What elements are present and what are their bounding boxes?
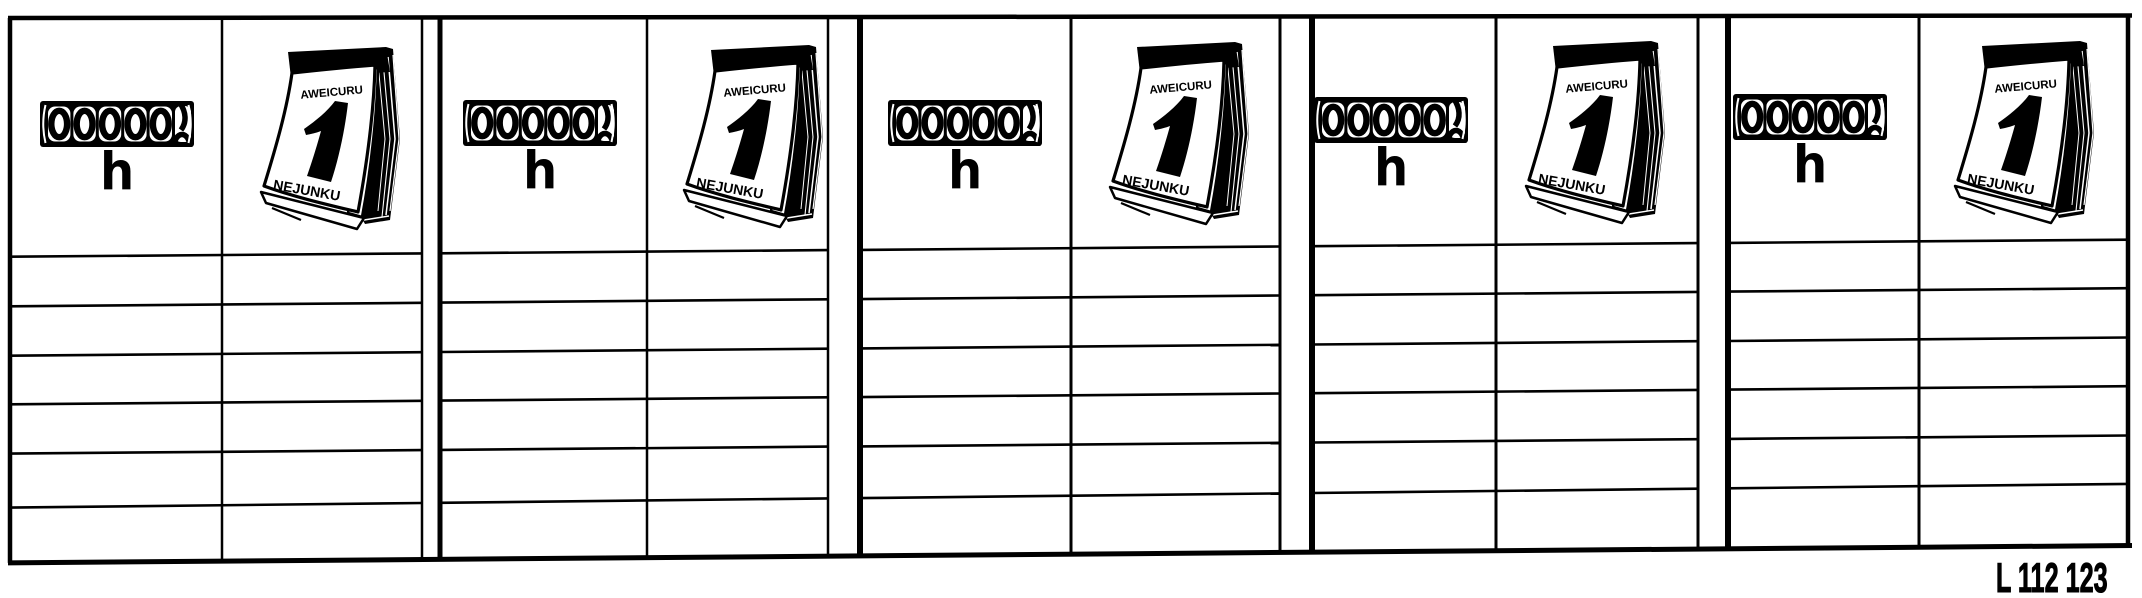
svg-text:L 112 123: L 112 123 [1996,556,2108,598]
